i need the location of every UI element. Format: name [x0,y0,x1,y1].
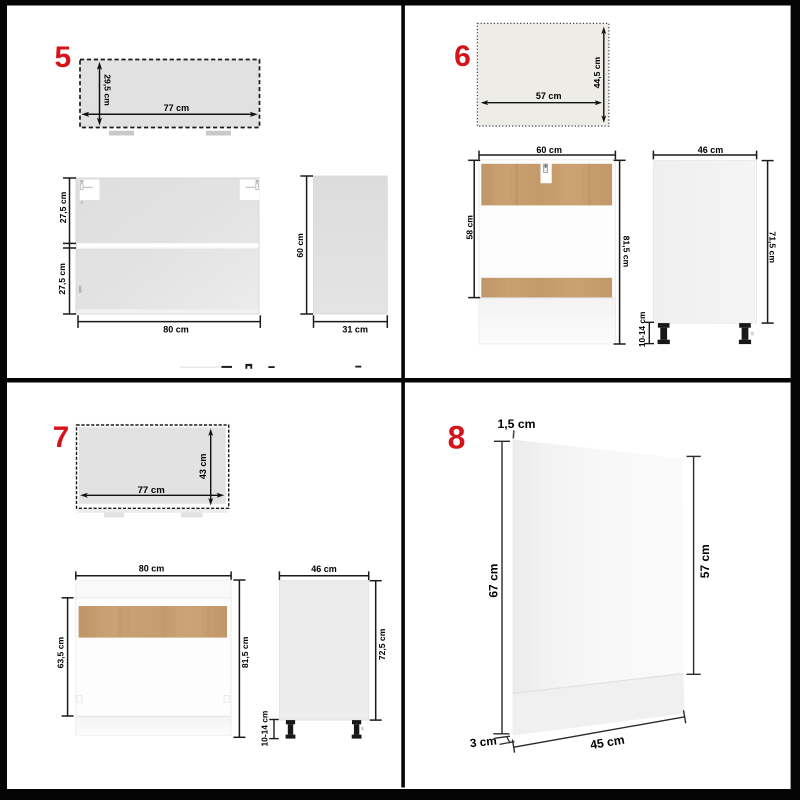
svg-text:10-14 cm: 10-14 cm [259,711,269,747]
svg-text:80 cm: 80 cm [139,563,165,573]
svg-text:31 cm: 31 cm [342,324,368,334]
svg-text:7: 7 [53,421,69,454]
svg-text:60 cm: 60 cm [536,145,562,155]
svg-text:43 cm: 43 cm [198,454,208,480]
svg-text:77 cm: 77 cm [138,485,165,496]
svg-text:57 cm: 57 cm [536,91,562,101]
svg-text:3 cm: 3 cm [469,734,497,751]
svg-text:80 cm: 80 cm [163,324,189,334]
svg-text:63,5 cm: 63,5 cm [56,636,66,668]
svg-text:71,5 cm: 71,5 cm [768,231,778,263]
svg-text:6: 6 [454,40,471,73]
svg-text:27,5 cm: 27,5 cm [58,191,68,223]
svg-text:29,5 cm: 29,5 cm [103,74,113,106]
svg-text:58 cm: 58 cm [464,215,474,240]
svg-text:46 cm: 46 cm [698,145,724,155]
svg-text:44,5 cm: 44,5 cm [592,56,602,88]
svg-text:57 cm: 57 cm [698,544,712,578]
svg-text:81,5 cm: 81,5 cm [622,236,632,268]
svg-text:67 cm: 67 cm [487,564,501,598]
svg-text:5: 5 [54,41,71,74]
svg-text:8: 8 [448,420,466,456]
svg-text:77 cm: 77 cm [164,103,190,113]
svg-text:27,5 cm: 27,5 cm [57,263,67,295]
svg-text:72,5 cm: 72,5 cm [377,628,387,660]
svg-text:81,5 cm: 81,5 cm [240,636,250,668]
svg-text:46 cm: 46 cm [311,564,337,574]
svg-text:10-14 cm: 10-14 cm [637,312,647,348]
svg-text:1,5 cm: 1,5 cm [498,417,536,431]
svg-text:60 cm: 60 cm [295,233,305,258]
